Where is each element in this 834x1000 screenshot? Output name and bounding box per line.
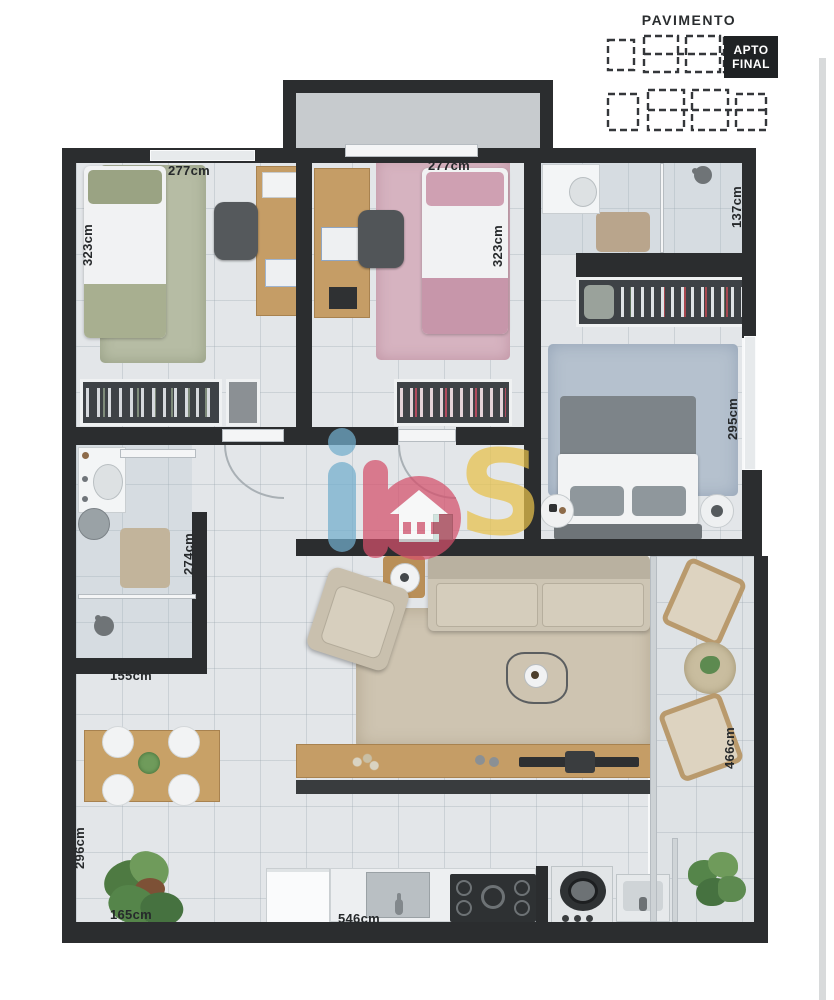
badge-line1: APTO: [733, 43, 768, 57]
chair-seat: [168, 774, 200, 806]
coffee-table: [506, 652, 568, 704]
apto-final-badge: APTO FINAL: [724, 36, 778, 78]
shower-head-icon: [694, 166, 712, 184]
wall-bath1-bottom: [576, 253, 742, 277]
laundry-basket: [584, 285, 614, 319]
wall-bed1-bed2: [296, 148, 312, 445]
laundry-glass-door: [672, 838, 678, 922]
faucet: [395, 899, 403, 915]
dim-bathroom1-depth: 137cm: [729, 186, 744, 228]
wall-bottom: [62, 922, 768, 943]
watermark-b-bowl: [377, 476, 461, 560]
bedroom1-window: [150, 150, 255, 161]
ibs-watermark: S: [322, 426, 522, 566]
vestibule: [283, 80, 553, 152]
bed-pillow: [88, 170, 162, 204]
dim-bathroom2-width: 155cm: [110, 668, 152, 683]
wall-right-upper: [742, 148, 756, 338]
desk-mat: [329, 287, 357, 309]
pillow-left: [570, 486, 624, 516]
legend-title: PAVIMENTO: [598, 12, 780, 28]
house-icon: [390, 490, 448, 514]
headboard: [560, 396, 696, 458]
laptop: [321, 227, 359, 261]
badge-line2: FINAL: [732, 57, 770, 71]
bedroom2-wardrobe: [394, 379, 512, 426]
balcony-pouf: [684, 642, 736, 694]
bed-blanket: [422, 278, 508, 334]
dim-bedroom2-width: 277cm: [428, 158, 470, 173]
cups: [475, 755, 485, 765]
chair-seat: [102, 726, 134, 758]
tv-sideboard: [296, 744, 656, 778]
entry-door: [345, 144, 478, 157]
sofa: [428, 555, 650, 631]
dim-dining-width: 165cm: [110, 907, 152, 922]
chair-seat: [168, 726, 200, 758]
watermark-i-dot: [328, 428, 356, 456]
page-edge-strip: [819, 58, 826, 1000]
dim-bedroom1-width: 277cm: [168, 163, 210, 178]
floorplan-page: { "legend": { "title": "PAVIMENTO", "bad…: [0, 0, 834, 1000]
shower-glass: [660, 163, 664, 253]
dim-master-depth: 295cm: [725, 398, 740, 440]
hanging-clothes: [621, 287, 742, 318]
watermark-i-stem: [328, 462, 356, 552]
dim-bathroom2-depth: 274cm: [181, 533, 196, 575]
shower-glass: [78, 594, 196, 599]
dim-balcony-depth: 466cm: [722, 727, 737, 769]
wall-left: [62, 148, 76, 943]
hanging-clothes: [86, 388, 216, 417]
bathroom1-rug: [596, 212, 650, 252]
wall-balcony-right: [754, 556, 768, 943]
laundry-tub: [616, 874, 670, 922]
table-centerpiece: [138, 752, 160, 774]
master-closet: [576, 277, 748, 327]
bathroom2-vanity: [78, 447, 126, 513]
cooktop: [450, 874, 536, 922]
bed-pillow: [426, 172, 504, 206]
bedroom1-shelf: [226, 379, 260, 426]
sink-basin: [569, 177, 597, 207]
sink-basin: [93, 464, 123, 500]
nightstand-left: [540, 494, 574, 528]
watermark-s: S: [458, 434, 543, 552]
sofa-cushion: [436, 583, 538, 627]
bedroom1-desk-chair: [214, 202, 258, 260]
bedroom2-desk-chair: [358, 210, 404, 268]
shower-head-icon: [94, 616, 114, 636]
bathroom2-sliding-door: [120, 449, 196, 458]
master-bed: [558, 396, 698, 542]
kitchen-laundry-divider: [536, 866, 548, 922]
dim-dining-depth: 296cm: [72, 827, 87, 869]
counter-bench: [296, 780, 656, 794]
bedroom1-door: [222, 429, 284, 442]
fridge: [266, 868, 330, 924]
foot-bench: [554, 524, 702, 540]
dim-kitchen-width: 546cm: [338, 911, 380, 926]
bedroom1-bed: [84, 166, 166, 338]
balcony-plant: [686, 852, 750, 912]
bedroom1-wardrobe: [80, 379, 222, 426]
nightstand-right: [700, 494, 734, 528]
dim-bedroom2-depth: 323cm: [490, 225, 505, 267]
chair-seat: [102, 774, 134, 806]
dim-bedroom1-depth: 323cm: [80, 224, 95, 266]
flower-decor: [347, 753, 381, 771]
pillow-right: [632, 486, 686, 516]
washing-machine: [551, 866, 613, 924]
balcony-glass-partition: [650, 556, 657, 922]
bed-blanket: [84, 284, 166, 338]
sofa-cushion: [542, 583, 644, 627]
hanging-clothes: [400, 388, 506, 417]
bathroom2-rug: [120, 528, 170, 588]
bathroom2-basket: [78, 508, 110, 540]
bathroom1-vanity: [542, 164, 600, 214]
master-window: [744, 336, 756, 470]
